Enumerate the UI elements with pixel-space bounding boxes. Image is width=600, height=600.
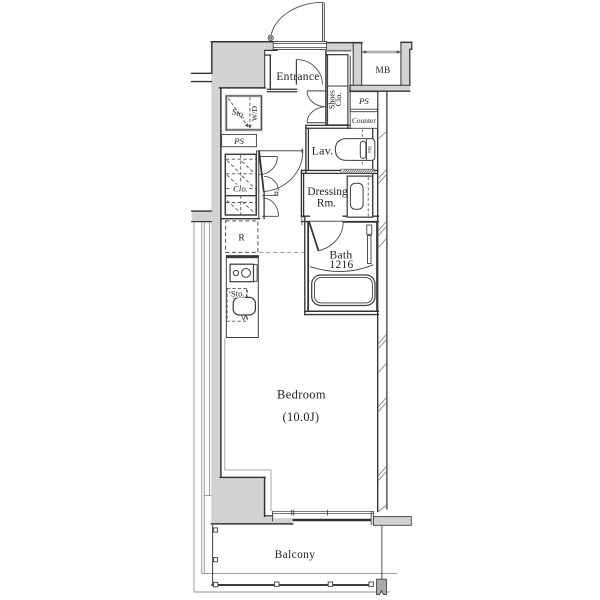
svg-text:Rm.: Rm. (317, 197, 336, 209)
svg-text:Lav.: Lav. (312, 144, 334, 158)
svg-text:Bedroom: Bedroom (277, 388, 326, 402)
svg-text:Balcony: Balcony (275, 549, 316, 561)
svg-text:R: R (238, 233, 245, 243)
svg-text:Entrance: Entrance (276, 71, 319, 83)
svg-text:MB: MB (375, 66, 390, 76)
svg-text:Sto.: Sto. (231, 288, 245, 298)
svg-text:Counter: Counter (352, 116, 376, 125)
svg-text:PS: PS (233, 136, 244, 146)
svg-text:Clo.: Clo. (233, 184, 248, 194)
svg-text:W/D: W/D (250, 106, 259, 122)
svg-text:PS: PS (358, 96, 369, 106)
svg-text:Clo.: Clo. (334, 93, 343, 107)
svg-text:(10.0J): (10.0J) (283, 410, 320, 424)
svg-text:1216: 1216 (329, 259, 353, 271)
svg-text:Sto: Sto (366, 146, 372, 154)
